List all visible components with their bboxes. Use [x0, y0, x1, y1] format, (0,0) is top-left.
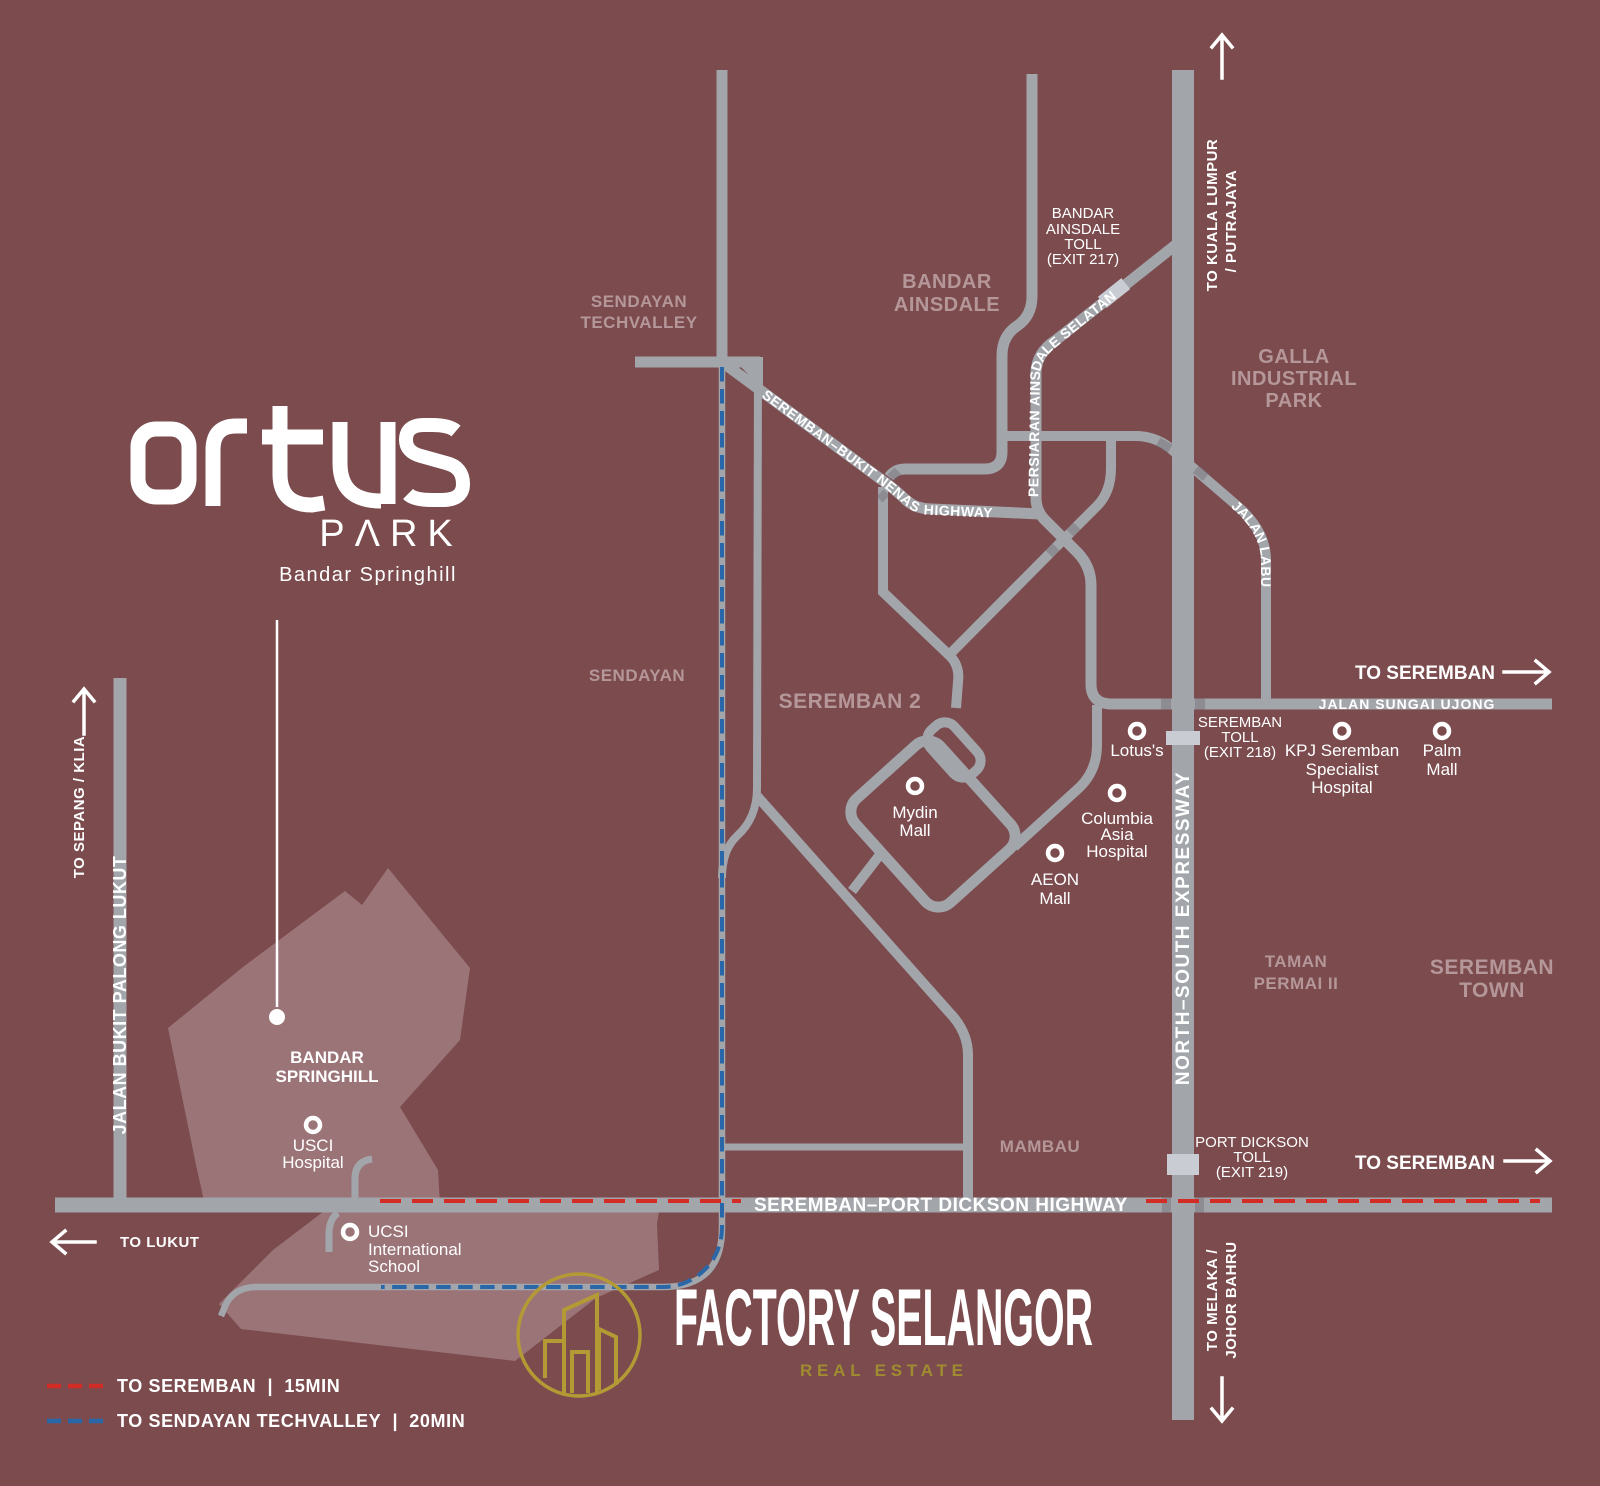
- svg-text:REAL ESTATE: REAL ESTATE: [800, 1361, 963, 1380]
- svg-text:AEON: AEON: [1031, 870, 1079, 889]
- svg-text:PΛRK: PΛRK: [319, 513, 463, 555]
- svg-text:JOHOR BAHRU: JOHOR BAHRU: [1223, 1241, 1240, 1358]
- svg-text:BANDAR: BANDAR: [290, 1048, 364, 1067]
- svg-text:SENDAYAN: SENDAYAN: [591, 292, 687, 311]
- svg-text:TO SEREMBAN: TO SEREMBAN: [1355, 663, 1495, 684]
- svg-text:Mall: Mall: [899, 821, 930, 840]
- svg-text:TOWN: TOWN: [1459, 979, 1525, 1002]
- svg-text:TECHVALLEY: TECHVALLEY: [580, 313, 697, 332]
- svg-text:TO SEREMBAN: TO SEREMBAN: [1355, 1153, 1495, 1174]
- svg-text:MAMBAU: MAMBAU: [1000, 1137, 1080, 1156]
- svg-text:TO SEPANG / KLIA: TO SEPANG / KLIA: [71, 736, 88, 878]
- svg-text:Bandar Springhill: Bandar Springhill: [279, 564, 457, 586]
- svg-text:SEREMBAN: SEREMBAN: [1430, 956, 1554, 979]
- svg-text:TO MELAKA /: TO MELAKA /: [1204, 1249, 1221, 1351]
- svg-text:Palm: Palm: [1423, 741, 1462, 760]
- svg-text:Hospital: Hospital: [1311, 778, 1372, 797]
- svg-text:Specialist: Specialist: [1306, 760, 1379, 779]
- svg-text:TO LUKUT: TO LUKUT: [120, 1234, 200, 1251]
- svg-text:Hospital: Hospital: [282, 1153, 343, 1172]
- svg-text:UCSI: UCSI: [368, 1222, 409, 1241]
- svg-text:KPJ Seremban: KPJ Seremban: [1285, 741, 1399, 760]
- svg-text:PARK: PARK: [1265, 390, 1322, 412]
- svg-text:SENDAYAN: SENDAYAN: [589, 666, 685, 685]
- svg-text:AINSDALE: AINSDALE: [894, 294, 1000, 316]
- svg-text:Lotus's: Lotus's: [1110, 741, 1163, 760]
- svg-text:SEREMBAN 2: SEREMBAN 2: [779, 690, 922, 713]
- svg-text:Hospital: Hospital: [1086, 842, 1147, 861]
- svg-text:Mall: Mall: [1426, 760, 1457, 779]
- svg-text:GALLA: GALLA: [1258, 346, 1329, 368]
- svg-text:(EXIT 219): (EXIT 219): [1216, 1164, 1288, 1181]
- svg-text:JALAN SUNGAI UJONG: JALAN SUNGAI UJONG: [1319, 696, 1496, 712]
- svg-text:SPRINGHILL: SPRINGHILL: [276, 1067, 379, 1086]
- svg-text:School: School: [368, 1257, 420, 1276]
- svg-text:PERMAI II: PERMAI II: [1254, 974, 1339, 993]
- svg-text:NORTH–SOUTH EXPRESSWAY: NORTH–SOUTH EXPRESSWAY: [1173, 771, 1194, 1085]
- svg-text:TAMAN: TAMAN: [1265, 952, 1328, 971]
- svg-text:JALAN BUKIT PALONG LUKUT: JALAN BUKIT PALONG LUKUT: [110, 856, 130, 1135]
- svg-text:INDUSTRIAL: INDUSTRIAL: [1231, 368, 1357, 390]
- svg-text:TO SEREMBAN | 15MIN: TO SEREMBAN | 15MIN: [117, 1376, 340, 1396]
- svg-text:Mydin: Mydin: [892, 803, 937, 822]
- svg-text:(EXIT 218): (EXIT 218): [1204, 744, 1276, 761]
- svg-text:Mall: Mall: [1039, 889, 1070, 908]
- svg-text:(EXIT 217): (EXIT 217): [1047, 251, 1119, 268]
- svg-text:/ PUTRAJAYA: / PUTRAJAYA: [1223, 170, 1240, 273]
- svg-text:TO SENDAYAN TECHVALLEY | 20M: TO SENDAYAN TECHVALLEY | 20MIN: [117, 1411, 465, 1431]
- svg-text:BANDAR: BANDAR: [1052, 205, 1115, 222]
- svg-text:SEREMBAN–PORT DICKSON HIGHWAY: SEREMBAN–PORT DICKSON HIGHWAY: [754, 1195, 1128, 1216]
- svg-text:TO KUALA LUMPUR: TO KUALA LUMPUR: [1204, 139, 1221, 292]
- svg-text:BANDAR: BANDAR: [902, 271, 992, 293]
- svg-text:FACTORY SELANGOR: FACTORY SELANGOR: [674, 1273, 1093, 1363]
